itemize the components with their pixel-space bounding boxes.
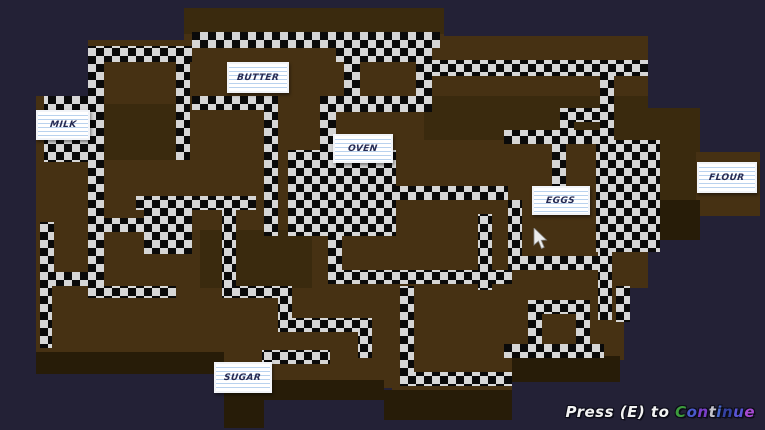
maze-block [36,352,224,374]
continue-letter: n [722,403,733,421]
maze-block [512,356,620,382]
maze-checker-path [400,286,414,386]
maze-checker-path [320,96,432,112]
continue-letter: n [697,403,708,421]
sign-text-eggs: EGGS [546,196,576,206]
continue-letter: C [675,403,687,421]
maze-checker-path [504,344,604,358]
game-map-canvas[interactable]: MILKBUTTEROVENEGGSFLOURSUGAR Press (E) t… [0,0,765,430]
maze-checker-path [192,32,440,48]
sign-label-sugar: SUGAR [214,362,272,393]
maze-checker-path [262,350,330,364]
maze-checker-path [598,214,612,320]
sign-label-milk: MILK [36,110,90,140]
maze-checker-path [222,196,236,288]
maze-checker-path [560,108,614,122]
sign-text-oven: OVEN [348,144,379,154]
sign-label-flour: FLOUR [697,162,757,193]
maze-checker-path [600,76,614,132]
maze-checker-path [504,130,614,144]
maze-checker-path [264,96,278,236]
press-e-prompt: Press (E) to Continue [566,403,755,421]
maze-checker-path [552,144,566,188]
maze-checker-path [528,300,590,314]
maze-checker-path [176,46,190,160]
maze-checker-path [278,318,358,332]
sign-label-eggs: EGGS [532,186,590,215]
maze-checker-path [192,96,272,110]
prompt-prefix-text: Press (E) to [566,403,676,421]
maze-checker-path [40,286,52,348]
continue-letter: o [687,403,698,421]
continue-word: Continue [675,403,755,421]
sign-text-butter: BUTTER [236,73,279,83]
maze-checker-path [88,218,148,232]
maze-checker-path [40,272,102,286]
maze-checker-path [478,214,492,290]
sign-text-flour: FLOUR [709,173,746,183]
sign-label-oven: OVEN [333,134,393,163]
maze-block [224,396,264,428]
sign-label-butter: BUTTER [227,62,289,93]
sign-text-milk: MILK [49,120,77,130]
maze-checker-path [88,286,176,298]
maze-checker-path [396,186,508,200]
maze-checker-path [508,256,612,270]
maze-block [200,230,312,288]
maze-checker-path [358,318,372,358]
maze-checker-path [616,286,630,322]
continue-letter: u [733,403,744,421]
maze-checker-path [400,372,512,386]
maze-block [384,390,512,420]
maze-checker-path [88,46,104,286]
maze-block [184,8,444,34]
maze-checker-path [144,196,192,254]
maze-checker-path [336,48,432,62]
maze-checker-path [432,60,648,76]
continue-letter: e [744,403,755,421]
maze-checker-path [344,62,360,98]
sign-text-sugar: SUGAR [224,373,262,383]
